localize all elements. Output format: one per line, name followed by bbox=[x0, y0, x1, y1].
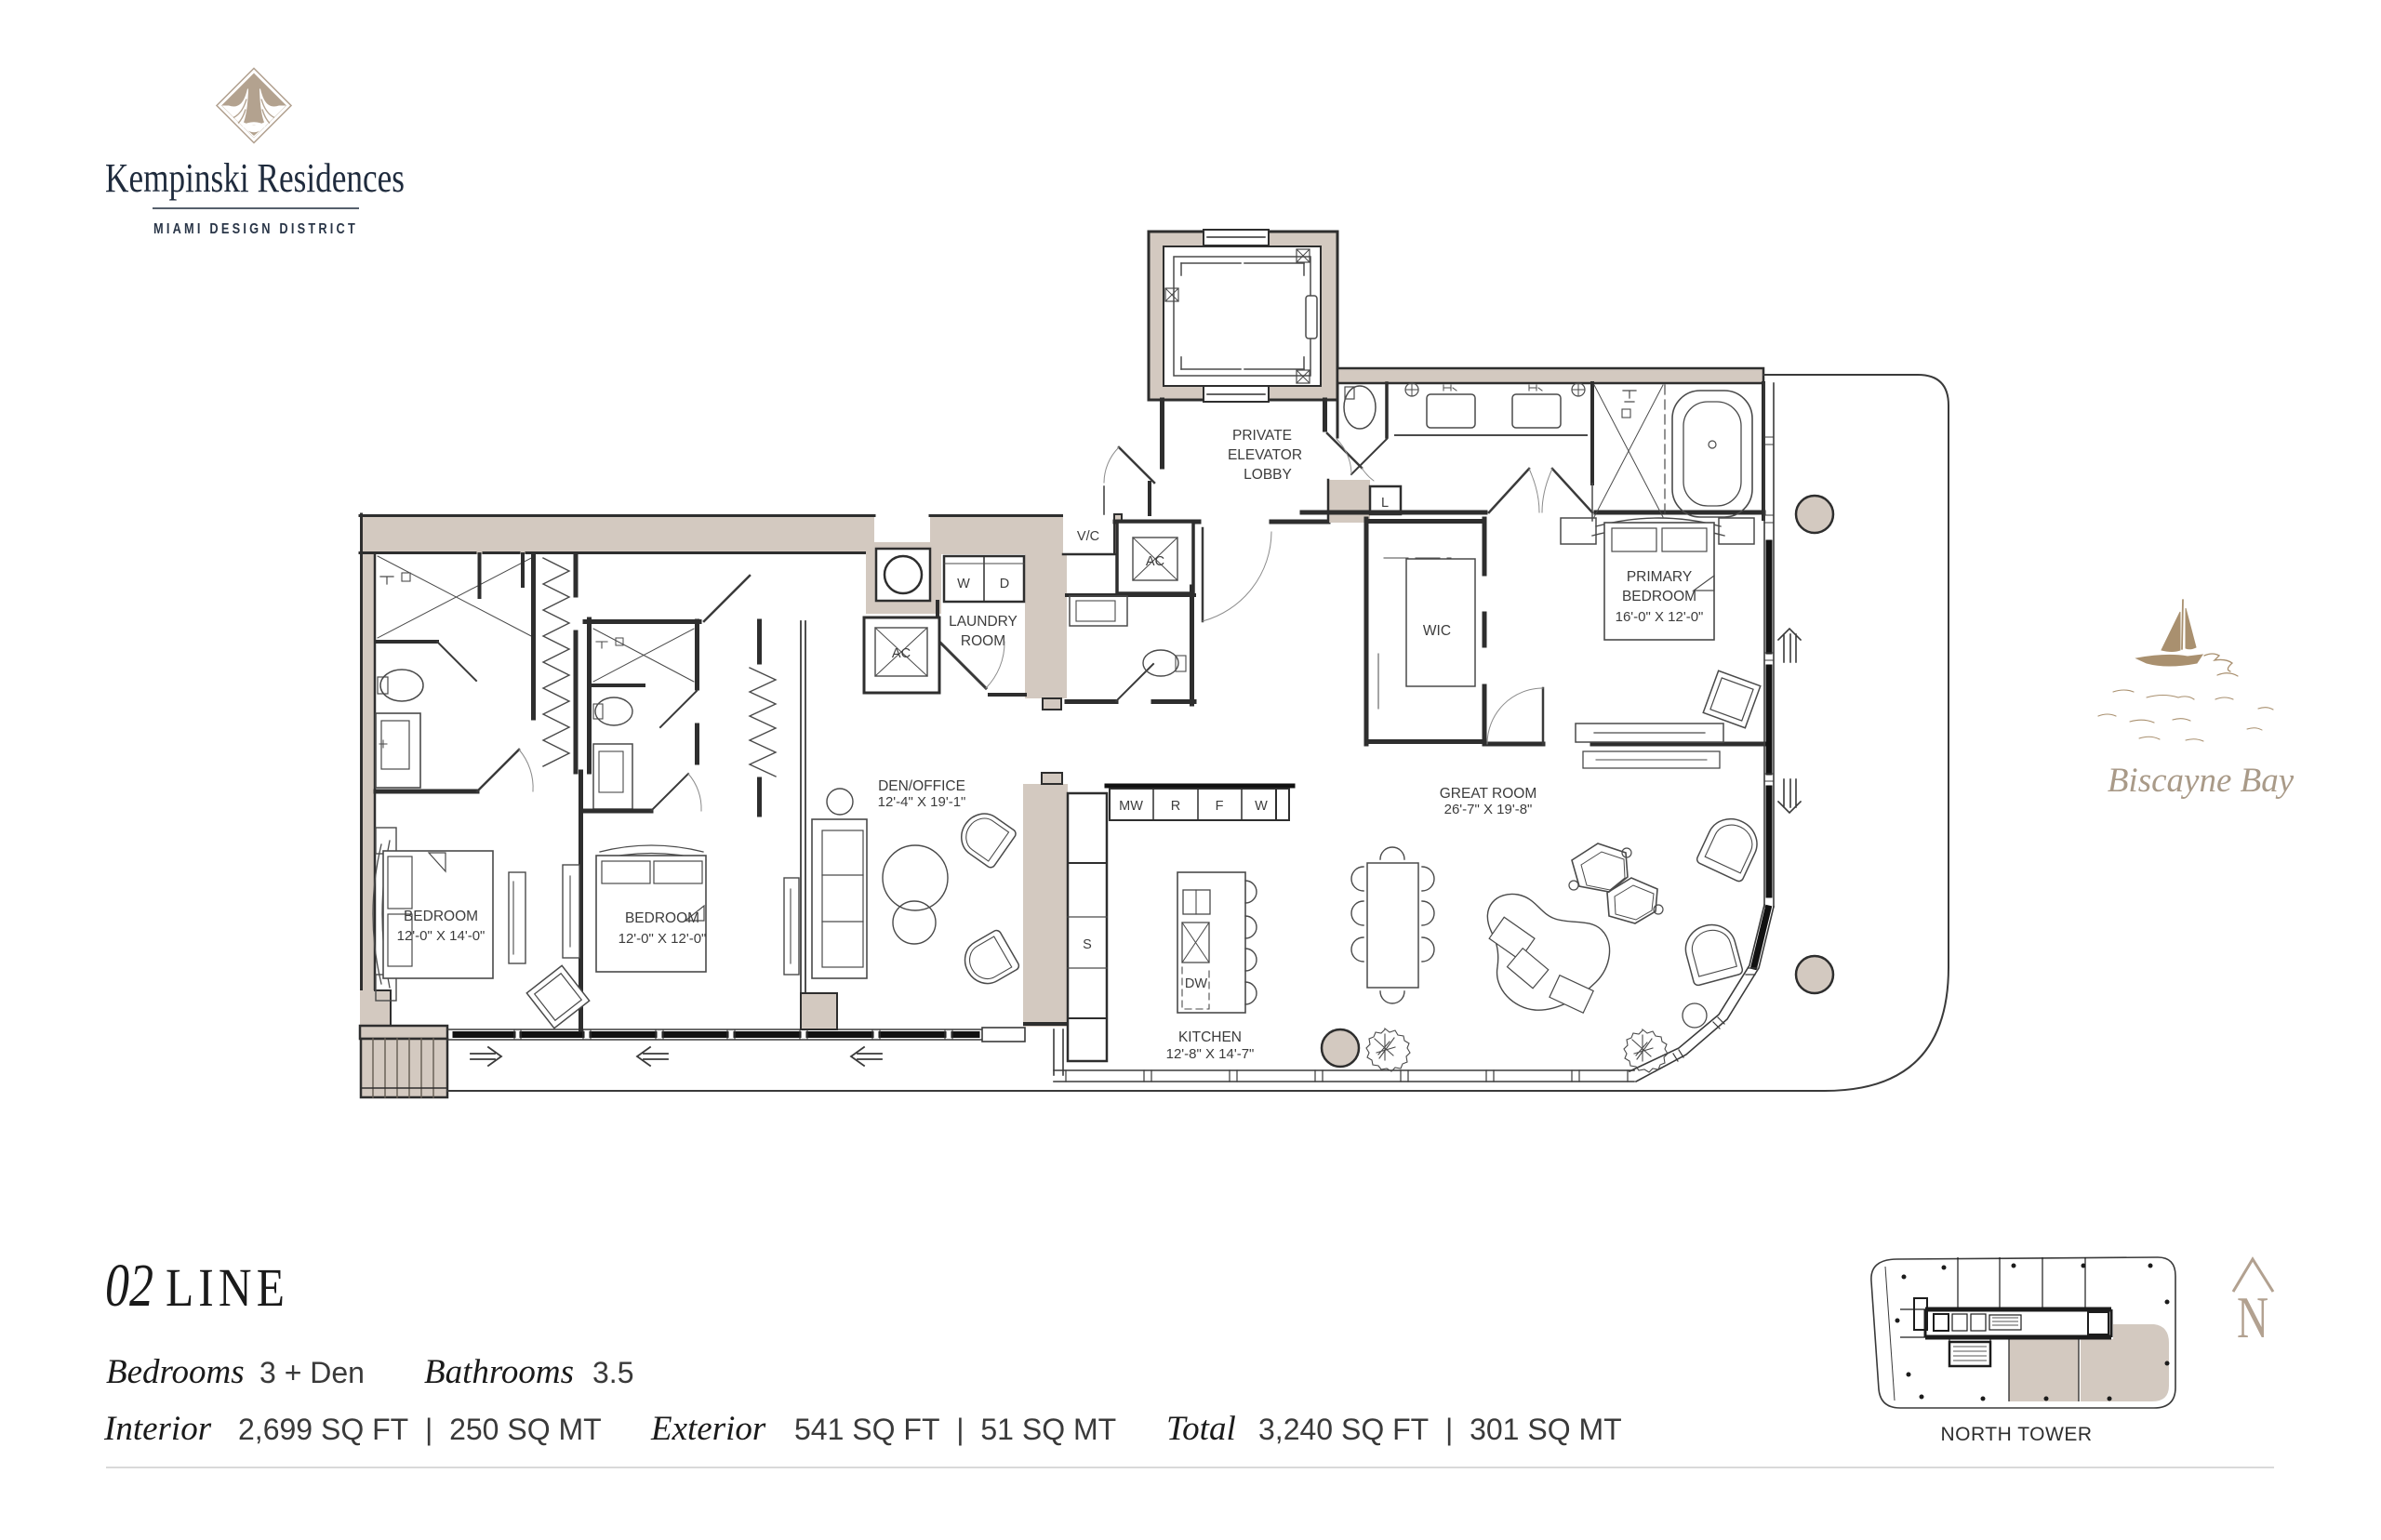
svg-text:BEDROOM: BEDROOM bbox=[404, 909, 478, 924]
svg-text:MIAMI DESIGN DISTRICT: MIAMI DESIGN DISTRICT bbox=[153, 221, 358, 237]
svg-text:ROOM: ROOM bbox=[961, 633, 1005, 649]
svg-text:LAUNDRY: LAUNDRY bbox=[949, 614, 1018, 630]
svg-text:12'-4" X 19'-1": 12'-4" X 19'-1" bbox=[878, 794, 966, 810]
svg-text:W: W bbox=[957, 577, 970, 591]
svg-text:DEN/OFFICE: DEN/OFFICE bbox=[878, 778, 965, 794]
svg-text:12'-8" X 14'-7": 12'-8" X 14'-7" bbox=[1166, 1046, 1255, 1062]
svg-text:LOBBY: LOBBY bbox=[1244, 467, 1292, 483]
svg-text:Bathrooms: Bathrooms bbox=[424, 1353, 574, 1391]
svg-text:12'-0" X 14'-0": 12'-0" X 14'-0" bbox=[397, 928, 486, 944]
svg-text:N: N bbox=[2237, 1284, 2268, 1350]
svg-text:Total: Total bbox=[1166, 1410, 1236, 1448]
svg-text:MW: MW bbox=[1119, 799, 1143, 814]
svg-text:V/C: V/C bbox=[1077, 529, 1099, 544]
svg-text:PRIMARY: PRIMARY bbox=[1627, 569, 1692, 585]
svg-text:W: W bbox=[1255, 799, 1268, 814]
svg-text:Bedrooms: Bedrooms bbox=[106, 1353, 245, 1391]
svg-text:L: L bbox=[1381, 496, 1389, 511]
svg-text:AC: AC bbox=[892, 646, 911, 661]
svg-text:F: F bbox=[1216, 799, 1224, 814]
svg-text:GREAT ROOM: GREAT ROOM bbox=[1440, 786, 1537, 802]
svg-text:Exterior: Exterior bbox=[650, 1410, 766, 1448]
svg-text:BEDROOM: BEDROOM bbox=[1622, 589, 1696, 604]
svg-text:3 + Den: 3 + Den bbox=[259, 1356, 365, 1389]
svg-text:AC: AC bbox=[1146, 554, 1164, 569]
svg-text:WIC: WIC bbox=[1423, 623, 1451, 639]
svg-text:3.5: 3.5 bbox=[592, 1356, 633, 1389]
svg-text:2,699 SQ FT | 250 SQ MT: 2,699 SQ FT | 250 SQ MT bbox=[238, 1413, 602, 1446]
svg-text:R: R bbox=[1171, 799, 1180, 814]
svg-text:Biscayne Bay: Biscayne Bay bbox=[2108, 762, 2295, 800]
svg-text:16'-0" X 12'-0": 16'-0" X 12'-0" bbox=[1616, 609, 1704, 625]
svg-text:BEDROOM: BEDROOM bbox=[625, 910, 699, 926]
svg-text:Interior: Interior bbox=[103, 1410, 212, 1448]
svg-text:LINE: LINE bbox=[166, 1257, 289, 1318]
svg-text:PRIVATE: PRIVATE bbox=[1232, 428, 1292, 444]
svg-text:26'-7" X 19'-8": 26'-7" X 19'-8" bbox=[1444, 802, 1533, 817]
svg-text:S: S bbox=[1083, 937, 1092, 952]
svg-text:D: D bbox=[1000, 577, 1009, 591]
svg-text:02: 02 bbox=[105, 1252, 153, 1320]
svg-text:NORTH TOWER: NORTH TOWER bbox=[1940, 1424, 2092, 1445]
svg-text:Kempinski Residences: Kempinski Residences bbox=[105, 155, 405, 201]
svg-text:12'-0" X 12'-0": 12'-0" X 12'-0" bbox=[619, 931, 707, 947]
svg-text:KITCHEN: KITCHEN bbox=[1178, 1029, 1242, 1045]
svg-text:3,240 SQ FT | 301 SQ MT: 3,240 SQ FT | 301 SQ MT bbox=[1258, 1413, 1622, 1446]
svg-text:ELEVATOR: ELEVATOR bbox=[1228, 447, 1302, 463]
svg-text:DW: DW bbox=[1185, 976, 1207, 991]
svg-text:541 SQ FT | 51 SQ MT: 541 SQ FT | 51 SQ MT bbox=[794, 1413, 1116, 1446]
